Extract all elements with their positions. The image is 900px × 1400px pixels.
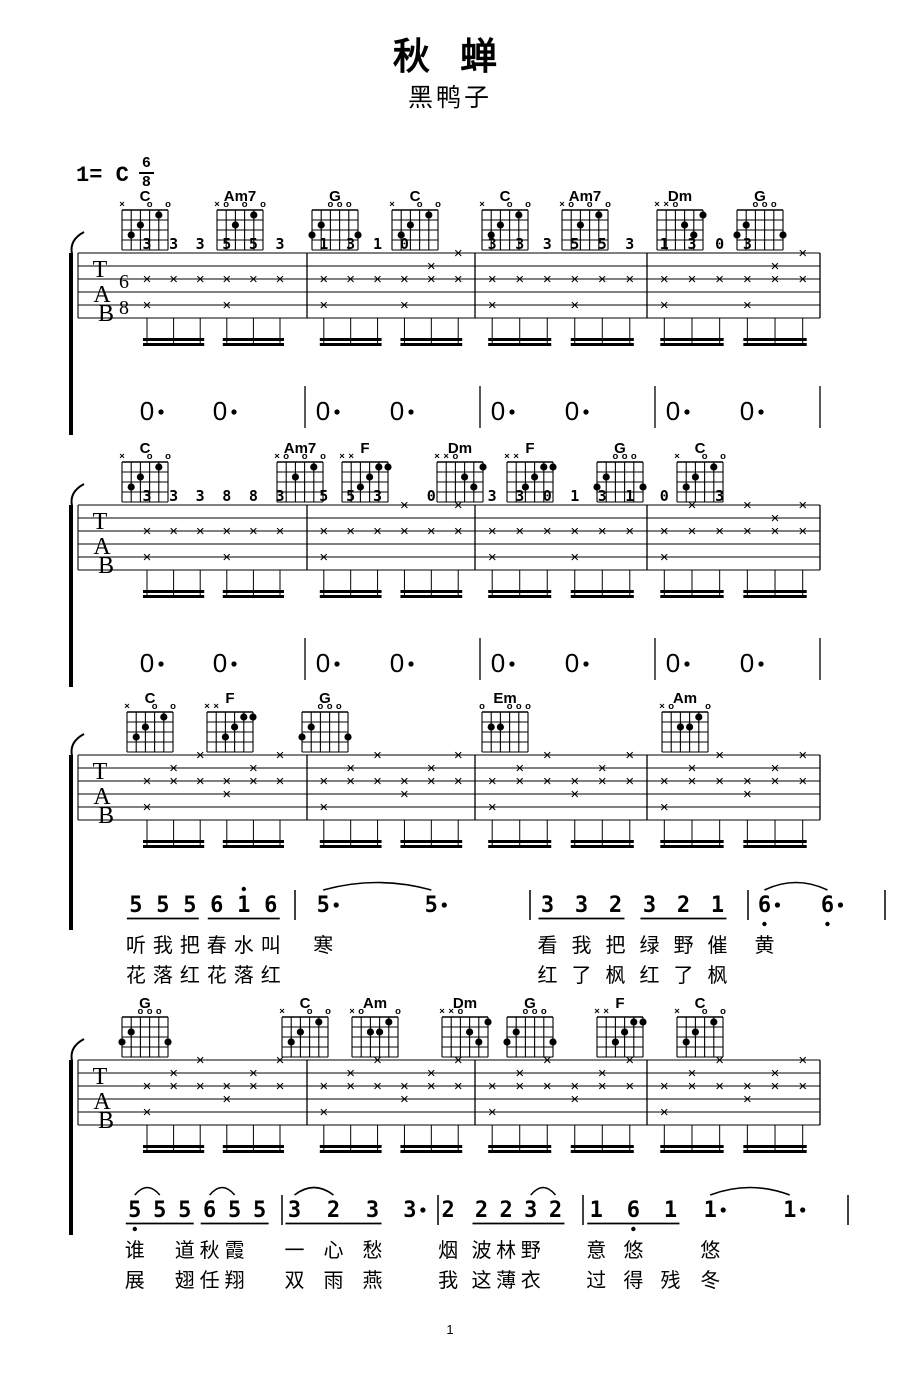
svg-text:×: × [603, 1006, 609, 1017]
svg-text:×: × [798, 1052, 807, 1069]
svg-text:×: × [570, 549, 579, 566]
svg-text:×: × [654, 199, 660, 210]
svg-text:×: × [598, 523, 607, 540]
svg-text:1: 1 [373, 235, 382, 253]
svg-text:×: × [454, 523, 463, 540]
svg-text:我: 我 [571, 934, 591, 957]
svg-text:o: o [137, 1006, 143, 1017]
svg-text:o: o [672, 199, 678, 210]
svg-text:×: × [443, 451, 449, 462]
svg-text:黄: 黄 [754, 934, 774, 957]
svg-text:×: × [204, 701, 210, 712]
svg-text:o: o [522, 1006, 528, 1017]
svg-text:o: o [612, 451, 618, 462]
svg-text:F: F [225, 690, 234, 707]
svg-text:×: × [543, 1078, 552, 1095]
svg-text:×: × [319, 1078, 328, 1095]
svg-text:0: 0 [140, 396, 154, 426]
svg-text:这: 这 [472, 1269, 492, 1292]
svg-text:×: × [346, 523, 355, 540]
svg-text:×: × [439, 1006, 445, 1017]
svg-text:0: 0 [213, 648, 227, 678]
artist-name: 黑鸭子 [0, 78, 900, 114]
svg-text:×: × [276, 747, 285, 764]
svg-text:×: × [798, 245, 807, 262]
svg-text:残: 残 [660, 1269, 680, 1292]
svg-text:3: 3 [488, 235, 497, 253]
svg-text:悠: 悠 [623, 1239, 643, 1262]
svg-text:1: 1 [625, 487, 634, 505]
svg-text:3: 3 [543, 235, 552, 253]
svg-text:o: o [762, 199, 768, 210]
svg-text:×: × [660, 1078, 669, 1095]
svg-text:道: 道 [175, 1239, 195, 1262]
svg-text:5: 5 [319, 487, 328, 505]
svg-text:3: 3 [488, 487, 497, 505]
svg-text:×: × [319, 549, 328, 566]
svg-text:×: × [570, 271, 579, 288]
svg-text:×: × [625, 523, 634, 540]
chord-row: C×ooAm7×oooF××Dm××oF××GoooC×oo [119, 440, 726, 502]
svg-text:×: × [625, 747, 634, 764]
svg-text:×: × [454, 497, 463, 514]
svg-text:5: 5 [253, 1198, 266, 1223]
svg-text:×: × [276, 1078, 285, 1095]
svg-text:0: 0 [427, 487, 436, 505]
svg-text:×: × [513, 451, 519, 462]
svg-text:×: × [319, 773, 328, 790]
svg-text:6: 6 [264, 893, 277, 918]
svg-text:1: 1 [711, 893, 724, 918]
svg-text:o: o [705, 701, 711, 712]
svg-text:×: × [400, 497, 409, 514]
svg-text:×: × [319, 523, 328, 540]
svg-text:6: 6 [821, 893, 834, 918]
chord-diagram-F: F×× [204, 690, 256, 752]
svg-text:×: × [143, 549, 152, 566]
svg-text:o: o [525, 701, 531, 712]
svg-text:3: 3 [643, 893, 656, 918]
chord-diagram-F: F×× [594, 995, 646, 1057]
svg-text:×: × [743, 1091, 752, 1108]
svg-text:×: × [119, 199, 125, 210]
svg-text:0: 0 [666, 396, 680, 426]
svg-text:我: 我 [438, 1269, 458, 1292]
svg-text:×: × [660, 773, 669, 790]
system-3: C×ooF××GoooEmooooAm×ooTAB×××××××××××××××… [0, 690, 900, 1002]
svg-text:×: × [346, 1078, 355, 1095]
svg-text:×: × [743, 786, 752, 803]
svg-text:×: × [798, 523, 807, 540]
svg-text:o: o [417, 199, 423, 210]
svg-text:×: × [515, 773, 524, 790]
svg-text:水: 水 [234, 934, 254, 957]
svg-text:o: o [165, 451, 171, 462]
svg-text:了: 了 [571, 965, 591, 987]
svg-text:×: × [625, 1078, 634, 1095]
svg-text:林: 林 [496, 1239, 516, 1262]
svg-text:我: 我 [153, 934, 173, 957]
svg-text:悠: 悠 [700, 1239, 720, 1262]
svg-text:×: × [196, 271, 205, 288]
svg-text:×: × [454, 271, 463, 288]
svg-text:×: × [715, 747, 724, 764]
svg-text:0: 0 [316, 396, 330, 426]
svg-text:×: × [427, 523, 436, 540]
jianpu-rest-line: 00000000 [140, 638, 820, 680]
chord-diagram-Am: Am×oo [659, 690, 711, 752]
svg-text:F: F [615, 995, 624, 1012]
chord-diagram-G: Gooo [118, 995, 171, 1057]
svg-text:o: o [771, 199, 777, 210]
svg-text:×: × [674, 1006, 680, 1017]
svg-text:×: × [743, 523, 752, 540]
svg-text:×: × [373, 1052, 382, 1069]
svg-text:×: × [543, 271, 552, 288]
svg-text:×: × [373, 523, 382, 540]
svg-text:×: × [594, 1006, 600, 1017]
svg-text:×: × [798, 271, 807, 288]
tab-staff: TAB683××3×3×5××5×3×1××3×1×0××××××3××3×3×… [71, 232, 820, 435]
chord-diagram-C: C×oo [124, 690, 176, 752]
svg-text:×: × [124, 701, 130, 712]
svg-text:o: o [170, 701, 176, 712]
svg-text:5: 5 [128, 1198, 141, 1223]
svg-text:×: × [598, 271, 607, 288]
svg-text:×: × [348, 451, 354, 462]
key-prefix: 1= C [76, 163, 129, 188]
chord-diagram-G: Gooo [298, 690, 351, 752]
svg-text:1: 1 [319, 235, 328, 253]
svg-text:薄: 薄 [496, 1269, 516, 1292]
svg-text:×: × [222, 523, 231, 540]
svg-text:3: 3 [196, 235, 205, 253]
svg-text:×: × [598, 773, 607, 790]
svg-text:×: × [213, 701, 219, 712]
svg-text:×: × [222, 297, 231, 314]
svg-text:o: o [242, 199, 248, 210]
svg-text:o: o [568, 199, 574, 210]
svg-text:×: × [276, 773, 285, 790]
svg-text:0: 0 [660, 487, 669, 505]
svg-text:2: 2 [442, 1198, 455, 1223]
svg-text:o: o [668, 701, 674, 712]
svg-text:6: 6 [203, 1198, 216, 1223]
svg-text:5: 5 [222, 235, 231, 253]
svg-text:o: o [147, 199, 153, 210]
svg-text:任: 任 [200, 1269, 220, 1292]
svg-text:o: o [223, 199, 229, 210]
svg-text:×: × [454, 1052, 463, 1069]
svg-text:T: T [93, 257, 108, 283]
svg-text:×: × [196, 747, 205, 764]
svg-text:×: × [143, 799, 152, 816]
svg-text:×: × [659, 701, 665, 712]
chord-diagram-G: Gooo [733, 188, 786, 250]
svg-text:×: × [570, 297, 579, 314]
svg-text:B: B [98, 301, 114, 327]
svg-text:3: 3 [142, 235, 151, 253]
svg-text:1: 1 [570, 487, 579, 505]
svg-text:×: × [674, 451, 680, 462]
svg-text:0: 0 [316, 648, 330, 678]
svg-text:波: 波 [472, 1239, 492, 1262]
svg-text:×: × [448, 1006, 454, 1017]
svg-text:×: × [454, 773, 463, 790]
svg-text:×: × [743, 297, 752, 314]
svg-text:Em: Em [493, 690, 516, 707]
svg-text:枫: 枫 [707, 964, 727, 987]
svg-text:o: o [283, 451, 289, 462]
chord-diagram-Em: Emoooo [479, 690, 531, 752]
svg-text:×: × [279, 1006, 285, 1017]
svg-text:冬: 冬 [700, 1269, 720, 1292]
svg-text:0: 0 [400, 235, 409, 253]
chord-row: C×ooF××GoooEmooooAm×oo [124, 690, 711, 752]
time-numerator: 6 [139, 156, 154, 174]
svg-text:o: o [752, 199, 758, 210]
svg-text:×: × [688, 1078, 697, 1095]
svg-text:×: × [249, 271, 258, 288]
svg-text:o: o [532, 1006, 538, 1017]
svg-text:o: o [147, 451, 153, 462]
chord-row: GoooC×ooAm×ooDm××oGoooF××C×oo [118, 995, 726, 1057]
svg-text:×: × [543, 523, 552, 540]
svg-text:5: 5 [346, 487, 355, 505]
svg-text:×: × [427, 271, 436, 288]
svg-text:花: 花 [207, 964, 227, 987]
svg-text:1: 1 [704, 1198, 717, 1223]
svg-text:0: 0 [740, 396, 754, 426]
chord-diagram-G: Gooo [503, 995, 556, 1057]
svg-text:×: × [771, 773, 780, 790]
svg-text:1: 1 [237, 893, 250, 918]
svg-text:o: o [317, 701, 323, 712]
svg-text:o: o [516, 701, 522, 712]
svg-text:×: × [196, 773, 205, 790]
chord-diagram-C: C×oo [674, 995, 726, 1057]
svg-text:B: B [98, 803, 114, 829]
svg-text:×: × [660, 549, 669, 566]
svg-text:红: 红 [261, 964, 281, 987]
svg-text:×: × [488, 549, 497, 566]
svg-text:×: × [504, 451, 510, 462]
svg-text:×: × [515, 271, 524, 288]
svg-text:×: × [196, 1052, 205, 1069]
svg-text:×: × [488, 773, 497, 790]
svg-text:展: 展 [125, 1270, 145, 1292]
svg-text:o: o [507, 199, 513, 210]
svg-text:2: 2 [475, 1198, 488, 1223]
svg-text:×: × [798, 497, 807, 514]
svg-text:o: o [435, 199, 441, 210]
svg-text:0: 0 [666, 648, 680, 678]
svg-text:×: × [488, 1104, 497, 1121]
svg-text:红: 红 [639, 964, 659, 987]
svg-text:×: × [454, 1078, 463, 1095]
svg-text:3: 3 [288, 1198, 301, 1223]
svg-text:×: × [454, 245, 463, 262]
svg-text:o: o [327, 199, 333, 210]
svg-text:Am: Am [363, 995, 387, 1012]
svg-text:3: 3 [275, 487, 284, 505]
svg-text:×: × [743, 271, 752, 288]
svg-text:落: 落 [234, 964, 254, 987]
svg-text:×: × [688, 271, 697, 288]
svg-text:o: o [452, 451, 458, 462]
svg-text:0: 0 [565, 396, 579, 426]
svg-text:×: × [743, 497, 752, 514]
svg-text:3: 3 [715, 487, 724, 505]
svg-text:×: × [543, 1052, 552, 1069]
svg-text:o: o [346, 199, 352, 210]
svg-text:×: × [143, 523, 152, 540]
svg-text:翅: 翅 [175, 1269, 195, 1292]
svg-text:B: B [98, 1108, 114, 1134]
svg-text:×: × [515, 523, 524, 540]
svg-text:愁: 愁 [362, 1239, 382, 1262]
svg-text:o: o [337, 199, 343, 210]
svg-text:×: × [373, 1078, 382, 1095]
svg-text:×: × [427, 773, 436, 790]
svg-text:×: × [319, 297, 328, 314]
svg-text:3: 3 [169, 235, 178, 253]
svg-text:×: × [389, 199, 395, 210]
svg-text:1: 1 [660, 235, 669, 253]
svg-text:o: o [507, 701, 513, 712]
svg-text:×: × [798, 1078, 807, 1095]
svg-text:绿: 绿 [639, 934, 659, 957]
svg-text:3: 3 [515, 235, 524, 253]
svg-text:×: × [543, 773, 552, 790]
svg-text:3: 3 [403, 1198, 416, 1223]
svg-text:×: × [400, 523, 409, 540]
svg-text:×: × [373, 773, 382, 790]
svg-text:×: × [400, 1091, 409, 1108]
svg-text:o: o [605, 199, 611, 210]
svg-text:×: × [319, 799, 328, 816]
svg-text:o: o [587, 199, 593, 210]
svg-text:霞: 霞 [225, 1240, 245, 1262]
svg-text:×: × [570, 1091, 579, 1108]
chord-diagram-Am: Am×oo [349, 995, 401, 1057]
svg-text:×: × [143, 297, 152, 314]
svg-text:烟: 烟 [438, 1239, 458, 1262]
svg-text:过: 过 [586, 1269, 606, 1292]
svg-text:×: × [715, 1052, 724, 1069]
svg-text:×: × [771, 271, 780, 288]
svg-text:×: × [276, 1052, 285, 1069]
svg-text:5: 5 [425, 893, 438, 918]
svg-text:×: × [400, 297, 409, 314]
svg-text:×: × [143, 773, 152, 790]
svg-text:o: o [702, 451, 708, 462]
svg-text:×: × [276, 523, 285, 540]
svg-text:T: T [93, 509, 108, 535]
svg-text:×: × [715, 773, 724, 790]
svg-text:B: B [98, 553, 114, 579]
svg-text:6: 6 [627, 1198, 640, 1223]
svg-text:2: 2 [609, 893, 622, 918]
svg-text:×: × [660, 297, 669, 314]
svg-text:×: × [196, 523, 205, 540]
svg-text:意: 意 [586, 1239, 606, 1262]
svg-text:3: 3 [524, 1198, 537, 1223]
svg-text:5: 5 [178, 1198, 191, 1223]
svg-text:3: 3 [541, 893, 554, 918]
svg-text:×: × [339, 451, 345, 462]
svg-text:把: 把 [605, 934, 625, 957]
svg-text:×: × [559, 199, 565, 210]
svg-text:×: × [488, 1078, 497, 1095]
chord-diagram-Dm: Dm××o [434, 440, 486, 502]
svg-text:×: × [249, 773, 258, 790]
svg-text:×: × [488, 799, 497, 816]
svg-text:3: 3 [366, 1198, 379, 1223]
svg-text:把: 把 [180, 934, 200, 957]
svg-text:0: 0 [740, 648, 754, 678]
svg-text:3: 3 [142, 487, 151, 505]
svg-text:3: 3 [687, 235, 696, 253]
svg-text:衣: 衣 [521, 1269, 541, 1292]
svg-text:0: 0 [543, 487, 552, 505]
svg-text:燕: 燕 [362, 1269, 382, 1292]
svg-text:×: × [169, 1078, 178, 1095]
svg-text:8: 8 [249, 487, 258, 505]
svg-text:0: 0 [715, 235, 724, 253]
svg-text:野: 野 [673, 935, 693, 957]
svg-text:3: 3 [743, 235, 752, 253]
chord-diagram-C: C×oo [389, 188, 441, 250]
svg-text:×: × [143, 1104, 152, 1121]
svg-text:o: o [307, 1006, 313, 1017]
svg-text:o: o [260, 199, 266, 210]
svg-text:×: × [488, 297, 497, 314]
svg-text:1: 1 [783, 1198, 796, 1223]
svg-text:o: o [156, 1006, 162, 1017]
svg-text:催: 催 [707, 934, 727, 957]
svg-text:o: o [631, 451, 637, 462]
svg-text:×: × [222, 786, 231, 803]
svg-text:T: T [93, 1064, 108, 1090]
svg-text:o: o [325, 1006, 331, 1017]
svg-text:×: × [427, 1078, 436, 1095]
svg-text:3: 3 [598, 487, 607, 505]
svg-text:o: o [165, 199, 171, 210]
svg-text:5: 5 [249, 235, 258, 253]
svg-text:×: × [488, 271, 497, 288]
page-number: 1 [0, 1322, 900, 1337]
svg-text:秋: 秋 [200, 1239, 220, 1262]
svg-text:谁: 谁 [125, 1239, 145, 1262]
svg-text:3: 3 [169, 487, 178, 505]
svg-text:看: 看 [537, 934, 557, 957]
time-signature: 68 [139, 156, 154, 190]
svg-text:0: 0 [565, 648, 579, 678]
svg-text:心: 心 [323, 1240, 343, 1262]
svg-text:听: 听 [126, 934, 146, 957]
svg-text:o: o [720, 1006, 726, 1017]
svg-text:2: 2 [677, 893, 690, 918]
svg-text:×: × [222, 549, 231, 566]
svg-text:×: × [249, 523, 258, 540]
svg-text:得: 得 [623, 1269, 643, 1292]
song-title: 秋 蝉 [0, 26, 900, 80]
svg-text:5: 5 [570, 235, 579, 253]
svg-text:×: × [434, 451, 440, 462]
svg-text:3: 3 [575, 893, 588, 918]
svg-text:F: F [360, 440, 369, 457]
